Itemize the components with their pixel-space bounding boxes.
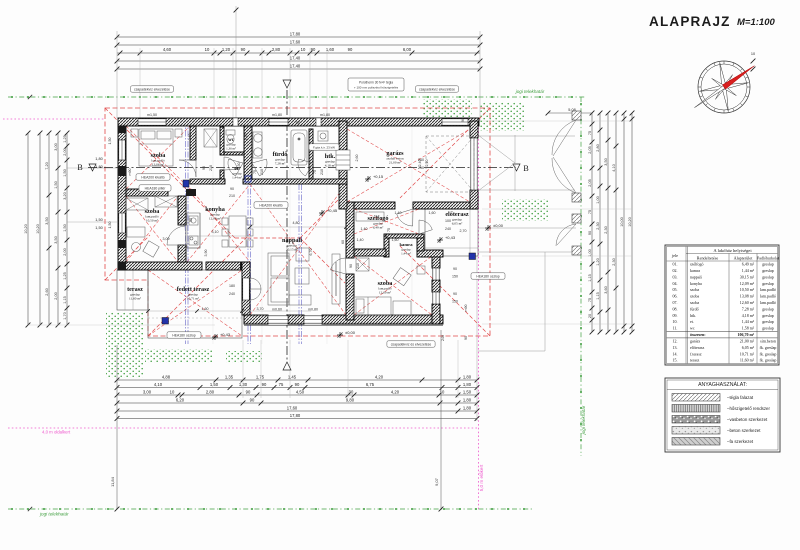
svg-text:2,30: 2,30 [604,226,608,233]
svg-text:HEA200 kiváltó: HEA200 kiváltó [141,175,164,179]
svg-text:greslap: greslap [762,326,774,331]
svg-text:1,40: 1,40 [357,238,364,242]
svg-text:240: 240 [441,335,445,341]
svg-text:2,80: 2,80 [272,47,281,52]
svg-text:09.: 09. [673,313,678,318]
svg-text:1,80: 1,80 [463,374,472,379]
svg-text:HEA180 pillér: HEA180 pillér [145,186,167,190]
svg-text:+0,15: +0,15 [373,174,384,179]
svg-text:csapadékvíz és elvezetése: csapadékvíz és elvezetése [391,342,432,346]
svg-text:3,50: 3,50 [54,236,58,243]
svg-text:07.: 07. [673,300,678,305]
svg-text:htk.: htk. [690,313,696,318]
svg-text:4,0 m oldalkert: 4,0 m oldalkert [42,430,71,435]
svg-text:jogi telekhatár: jogi telekhatár [39,512,69,517]
svg-text:3,90: 3,90 [204,250,208,257]
svg-text:90: 90 [230,187,234,191]
svg-text:6,75: 6,75 [366,382,375,387]
svg-text:17,40: 17,40 [290,55,301,60]
svg-text:7,20: 7,20 [45,162,49,169]
svg-text:06.: 06. [673,294,678,299]
svg-text:et.: et. [690,319,694,324]
svg-text:90: 90 [202,166,206,170]
svg-text:1,50: 1,50 [54,181,58,188]
svg-text:1,80: 1,80 [463,382,472,387]
svg-text:kamra: kamra [690,268,700,273]
svg-text:75: 75 [588,210,592,214]
svg-text:03.: 03. [673,274,678,279]
svg-text:17,60: 17,60 [290,39,301,44]
svg-text:11.: 11. [673,326,678,331]
svg-text:2,40: 2,40 [418,160,422,167]
svg-text:m1,50: m1,50 [147,113,157,117]
svg-text:1,00: 1,00 [596,196,600,203]
svg-text:20: 20 [588,314,592,318]
svg-text:2,05: 2,05 [588,179,592,186]
svg-text:75: 75 [387,228,391,232]
svg-text:4,10: 4,10 [154,382,163,387]
svg-text:HEA180 oszlop: HEA180 oszlop [476,274,499,278]
svg-text:3,00: 3,00 [163,237,170,241]
svg-text:fürdő: fürdő [690,306,699,311]
svg-text:1,80: 1,80 [463,405,472,410]
svg-text:1,50: 1,50 [108,138,112,145]
svg-text:greslap: greslap [762,268,774,273]
svg-text:1,25: 1,25 [63,135,67,142]
svg-text:B: B [523,164,528,173]
svg-text:90: 90 [246,389,251,394]
svg-text:210: 210 [320,169,324,175]
svg-text:210: 210 [229,194,235,198]
svg-text:3,50: 3,50 [604,158,608,165]
svg-text:10,00: 10,00 [620,217,624,227]
svg-text:szoba: szoba [690,300,699,305]
svg-text:4,10: 4,10 [612,164,616,171]
svg-text:csapadékvíz elvezetése: csapadékvíz elvezetése [419,87,455,91]
svg-text:100: 100 [445,219,451,223]
svg-text:1,45: 1,45 [288,374,297,379]
svg-text:4,20: 4,20 [391,389,400,394]
svg-text:5,0 m előkert: 5,0 m előkert [479,464,484,491]
svg-text:1,60: 1,60 [429,211,436,215]
svg-text:90: 90 [241,47,246,52]
svg-text:01.: 01. [673,262,678,267]
svg-text:10,20: 10,20 [628,217,632,227]
svg-text:3,10: 3,10 [212,230,219,234]
svg-text:+0,43: +0,43 [445,235,456,240]
svg-text:–vasbeton szerkezet: –vasbeton szerkezet [727,417,768,422]
svg-text:2,00: 2,00 [63,248,67,255]
svg-text:jogi telekhatár: jogi telekhatár [515,89,545,94]
svg-text:1,50: 1,50 [108,222,112,229]
svg-text:M=1:100: M=1:100 [737,17,775,28]
svg-text:240: 240 [445,227,451,231]
svg-text:szélfogó: szélfogó [690,262,704,267]
svg-text:sim.beton: sim.beton [760,339,776,344]
svg-text:előterasz: előterasz [690,345,704,350]
svg-text:1,80: 1,80 [95,165,102,169]
svg-text:14.: 14. [673,351,678,356]
svg-text:1,00: 1,00 [588,249,592,256]
svg-text:9,80: 9,80 [346,397,355,402]
svg-text:4,88: 4,88 [162,374,171,379]
svg-text:csapadékvíz elvezetése: csapadékvíz elvezetése [134,87,170,91]
svg-text:05.: 05. [673,287,678,292]
svg-text:fk. greslap: fk. greslap [760,345,777,350]
svg-text:150: 150 [452,300,458,304]
svg-text:greslap: greslap [762,281,774,286]
svg-text:3,00: 3,00 [54,143,58,150]
svg-text:±0,00: ±0,00 [345,330,356,335]
svg-text:10: 10 [301,47,306,52]
svg-text:1,25: 1,25 [63,272,67,279]
svg-text:szoba: szoba [690,294,699,299]
svg-text:4,60: 4,60 [163,47,172,52]
svg-text:1,50: 1,50 [63,224,67,231]
svg-text:nappali: nappali [690,274,703,279]
svg-text:fk. greslap: fk. greslap [760,358,777,363]
svg-text:10: 10 [440,389,445,394]
svg-text:1,80: 1,80 [463,397,472,402]
svg-text:2,05: 2,05 [588,146,592,153]
svg-text:1,15: 1,15 [596,292,600,299]
svg-text:1,30: 1,30 [237,163,241,170]
svg-text:4,50: 4,50 [296,389,305,394]
svg-text:90: 90 [588,231,592,235]
svg-text:–beton szerkezet: –beton szerkezet [727,428,761,433]
svg-text:08.: 08. [673,306,678,311]
svg-text:90: 90 [295,382,300,387]
svg-text:szoba: szoba [690,287,699,292]
svg-text:2,00: 2,00 [54,292,58,299]
svg-text:90: 90 [262,382,267,387]
svg-text:Alapterület: Alapterület [734,255,754,260]
svg-text:75: 75 [313,170,317,174]
svg-text:10: 10 [170,389,175,394]
svg-text:90: 90 [453,292,457,296]
svg-text:greslap: greslap [762,274,774,279]
svg-text:1,60: 1,60 [202,307,209,311]
svg-text:90: 90 [349,264,353,268]
svg-text:90: 90 [311,47,316,52]
svg-text:4,20: 4,20 [375,374,384,379]
svg-text:wc: wc [690,326,695,331]
svg-text:1,20: 1,20 [222,47,231,52]
svg-text:3,60: 3,60 [604,286,608,293]
svg-text:–tégla falazat: –tégla falazat [727,395,754,400]
svg-text:2,60: 2,60 [45,288,49,295]
svg-text:1,20: 1,20 [596,258,600,265]
svg-text:6,70: 6,70 [309,249,313,256]
svg-text:lam.padló: lam.padló [760,294,776,299]
svg-text:210: 210 [260,169,264,175]
svg-text:HEA200 kiváltó: HEA200 kiváltó [259,203,282,207]
svg-text:210: 210 [356,263,360,269]
svg-text:90: 90 [250,397,255,402]
svg-text:±0,00: ±0,00 [493,223,504,228]
svg-text:greslap: greslap [762,313,774,318]
svg-text:240: 240 [229,292,235,296]
svg-text:1,50: 1,50 [95,226,102,230]
svg-text:1,15: 1,15 [63,296,67,303]
svg-text:90: 90 [464,336,468,340]
svg-text:90: 90 [189,218,193,222]
svg-text:m90: m90 [128,169,132,176]
svg-text:1,35: 1,35 [244,134,248,141]
svg-text:A lakóház helyiségei: A lakóház helyiségei [713,248,752,253]
svg-text:ANYAGHASZNÁLAT:: ANYAGHASZNÁLAT: [698,381,747,388]
svg-text:04.: 04. [673,281,678,286]
svg-text:konyha: konyha [690,281,702,286]
svg-text:3,20: 3,20 [63,192,67,199]
svg-text:HEA180 oszlop: HEA180 oszlop [172,333,195,337]
svg-text:1,15: 1,15 [588,274,592,281]
svg-text:10.: 10. [673,319,678,324]
svg-text:3,70: 3,70 [257,307,264,311]
svg-text:lam.padló: lam.padló [760,287,776,292]
svg-text:1,30: 1,30 [239,382,248,387]
svg-text:+ 100 mm polisztirol hőszigete: + 100 mm polisztirol hőszigetelés [354,85,399,89]
svg-text:90: 90 [346,121,350,125]
svg-text:10,20: 10,20 [24,224,28,234]
svg-text:17,60: 17,60 [287,405,298,410]
svg-text:10: 10 [751,52,755,56]
svg-text:2,10: 2,10 [425,160,429,167]
svg-text:F.gáz.k.ir. 23 kW: F.gáz.k.ir. 23 kW [313,145,335,149]
svg-text:1,40: 1,40 [361,227,368,231]
svg-text:2,80: 2,80 [206,389,215,394]
svg-text:Porotherm 30 N+F tégla: Porotherm 30 N+F tégla [359,80,393,84]
svg-text:11,84: 11,84 [110,476,115,486]
svg-text:2,80: 2,80 [596,144,600,151]
svg-text:1,70: 1,70 [63,312,67,319]
svg-text:90: 90 [461,118,465,122]
svg-text:90: 90 [453,267,457,271]
svg-text:–hőszigetelő rendszer: –hőszigetelő rendszer [727,406,770,411]
svg-text:1,50: 1,50 [95,218,102,222]
svg-text:6,20: 6,20 [176,397,185,402]
svg-text:Padlóburkolat: Padlóburkolat [757,256,780,260]
svg-text:3,50: 3,50 [45,217,49,224]
svg-text:75: 75 [253,170,257,174]
svg-text:30: 30 [349,389,354,394]
svg-text:1,60: 1,60 [326,47,335,52]
svg-text:m1,80: m1,80 [272,113,282,117]
svg-text:lam.padló: lam.padló [760,300,776,305]
svg-text:+0,43: +0,43 [220,332,231,337]
svg-text:210: 210 [209,165,213,171]
svg-text:2,60: 2,60 [355,155,359,162]
svg-text:75: 75 [588,131,592,135]
svg-text:összesen:: összesen: [690,332,706,337]
svg-text:greslap: greslap [762,262,774,267]
svg-text:B: B [77,163,82,172]
svg-text:10,20: 10,20 [36,224,40,234]
svg-text:jele: jele [671,253,678,258]
svg-text:1,75: 1,75 [256,374,265,379]
svg-text:15.: 15. [673,358,678,363]
svg-text:150: 150 [452,275,458,279]
svg-text:2,00: 2,00 [63,148,67,155]
svg-text:1,50: 1,50 [63,169,67,176]
svg-text:jogi telekhatár: jogi telekhatár [581,405,586,435]
svg-text:m90: m90 [464,305,468,312]
svg-text:6,00: 6,00 [403,47,412,52]
svg-text:2,30: 2,30 [596,222,600,229]
svg-text:13.: 13. [673,345,678,350]
svg-text:1,50: 1,50 [463,389,472,394]
svg-text:greslap: greslap [762,319,774,324]
svg-text:ALAPRAJZ: ALAPRAJZ [649,14,731,29]
svg-text:greslap: greslap [762,306,774,311]
svg-text:17,40: 17,40 [290,63,301,68]
svg-text:17,80: 17,80 [290,31,301,36]
svg-text:106,70 m²: 106,70 m² [737,332,754,337]
svg-text:12.: 12. [673,339,678,344]
svg-text:3,00: 3,00 [143,389,152,394]
svg-text:kamra: kamra [399,242,413,247]
svg-text:10: 10 [205,47,210,52]
svg-text:f.terasz: f.terasz [690,351,702,356]
svg-text:75: 75 [588,298,592,302]
svg-text:1,50: 1,50 [210,382,219,387]
svg-text:17,80: 17,80 [290,413,301,418]
svg-text:75: 75 [279,382,284,387]
svg-text:180: 180 [229,284,235,288]
svg-text:1,40: 1,40 [395,211,402,215]
svg-text:02.: 02. [673,268,678,273]
svg-text:1,80: 1,80 [95,157,102,161]
svg-text:60: 60 [341,240,345,244]
svg-text:2,70: 2,70 [460,229,467,233]
svg-text:90: 90 [296,121,300,125]
svg-text:1,35: 1,35 [225,374,234,379]
svg-text:Rendeltetése: Rendeltetése [697,255,719,260]
svg-text:–fa szerkezet: –fa szerkezet [727,439,754,444]
svg-text:+0,45: +0,45 [327,208,338,213]
svg-text:m1,80: m1,80 [320,113,330,117]
svg-text:90: 90 [348,47,353,52]
svg-text:9,07: 9,07 [434,477,439,486]
svg-text:2,60: 2,60 [188,134,192,141]
svg-text:1,60: 1,60 [392,238,399,242]
svg-text:terasz: terasz [690,358,700,363]
svg-text:garázs: garázs [690,339,701,344]
svg-text:4,80: 4,80 [293,221,300,225]
svg-text:2,30: 2,30 [612,258,616,265]
svg-text:fk. greslap: fk. greslap [760,351,777,356]
